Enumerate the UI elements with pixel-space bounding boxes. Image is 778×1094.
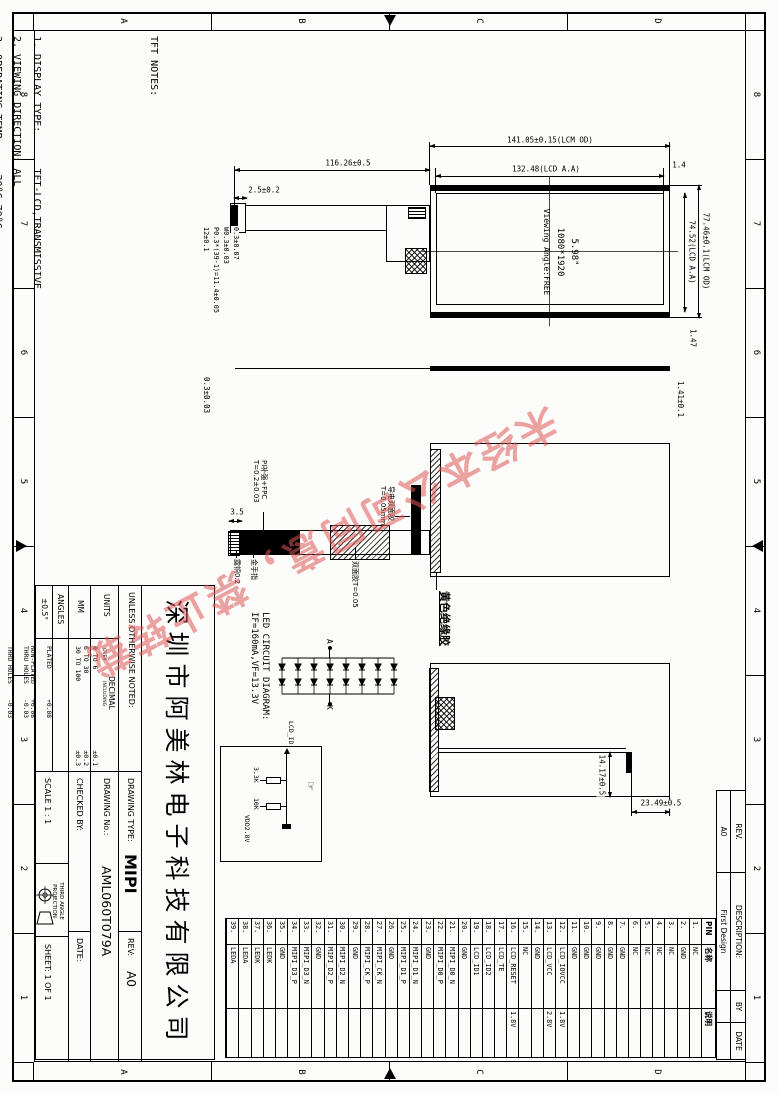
date-label: DATE: [75, 938, 84, 962]
lcm-edge-band [430, 312, 670, 318]
pin-name: MIPI_D3_P [288, 945, 299, 1009]
pin-desc [519, 1009, 530, 1057]
leader-line [263, 512, 264, 531]
dim-gap-right: 1.47 [688, 328, 697, 348]
dim-line [436, 176, 664, 177]
dim-line [229, 521, 242, 522]
dim-line [609, 752, 610, 797]
pin-row: 30. MIPI_D2_N [336, 919, 348, 1057]
pin-row: 13. LCD_VCC 2.8V [543, 919, 555, 1057]
pin-name: GND [568, 945, 579, 1009]
pin-number: 13. [544, 919, 555, 945]
note-line: 1. DISPLAY TYPE: TFT-LCD,TRANSMISSIVE [27, 36, 47, 337]
pin-row: 37. LEDK [251, 919, 263, 1057]
label-text: PI补强+FPC [260, 460, 268, 503]
pin-name: MIPI_D1_N [410, 945, 421, 1009]
pin-row: 15. NC [518, 919, 530, 1057]
rev-header-row: REV. DESCRIPTION: BY DATE [731, 791, 746, 1059]
title-block: 深圳市阿美林电子科技有限公司 UNLESS OTHERWISE NOTED: U… [35, 585, 215, 1060]
label-text: 导电双面胶 [387, 486, 395, 525]
dim-aa-height: 74.52(LCD A.A) [687, 219, 696, 284]
pin-row: 17. LCD_TE [494, 919, 506, 1057]
anode-label: A [325, 638, 334, 645]
lcm-edge-band [430, 185, 670, 191]
pin-desc [532, 1009, 543, 1057]
pin-desc [592, 1009, 603, 1057]
pin-row: 25. MIPI_D1_P [397, 919, 409, 1057]
pin-desc [349, 1009, 360, 1057]
revision-table: REV. DESCRIPTION: BY DATE A0 First Desig… [716, 790, 746, 1060]
pin-number: 22. [434, 919, 445, 945]
label-conductive-tape: 导电双面胶 T=0.05mm [379, 486, 395, 525]
company-name: 深圳市阿美林电子科技有限公司 [142, 586, 214, 1061]
rev-value: A0 [124, 971, 138, 987]
pin-number: 6. [629, 919, 640, 945]
dim-gap-top: 1.4 [671, 162, 687, 171]
pin-row: 3. NC [664, 919, 676, 1057]
cathode-dot [328, 702, 332, 706]
pin-name: GND [422, 945, 433, 1009]
pin-number: 32. [313, 919, 324, 945]
label-gold-finger: 金手指 [250, 558, 258, 581]
label-yellow-insulation: 黄色绝缘胶 [437, 590, 450, 647]
center-mark-icon [384, 15, 396, 26]
resistor-r1 [266, 777, 281, 784]
pin-name: NC [641, 945, 652, 1009]
fpc-component-hatch [405, 248, 427, 274]
fpc-connector-detail [408, 207, 426, 219]
pin-col-header: 说明 [702, 1009, 715, 1057]
zone-letter: C [390, 12, 568, 30]
hand-pointer-icon: ☞ [303, 780, 316, 792]
pin-row: 24. MIPI_D1_N [409, 919, 421, 1057]
rev-value: A0 [717, 791, 731, 873]
pin-number: 5. [641, 919, 652, 945]
pin-name: GND [617, 945, 628, 1009]
pin-number: 33. [300, 919, 311, 945]
pin-desc [690, 1009, 701, 1057]
wire [281, 806, 287, 807]
pin-col-header: 名称 [702, 945, 715, 1009]
insulation-strip [429, 668, 439, 792]
dim-line [684, 193, 685, 312]
dim-line [430, 146, 670, 147]
leader-line [236, 550, 237, 558]
dim-fpc-length: 116.26±0.5 [324, 160, 371, 169]
wire [281, 780, 287, 781]
pin-name: MIPI_CK_P [361, 945, 372, 1009]
decimal-tolerances: 0 TO 6 ±0.1 6 TO 30 ±0.2 30 TO 100 ±0.3 [74, 646, 100, 766]
rev-col-header: DATE [732, 1023, 746, 1059]
pin-row: 9. GND [591, 919, 603, 1057]
pin-row: 35. GND [275, 919, 287, 1057]
pin-row: 16. LCD_RESET 1.8V [506, 919, 518, 1057]
decimal-row: 6 TO 30 ±0.2 [82, 646, 91, 766]
pin-row: 14. GND [531, 919, 543, 1057]
pin-name: GND [276, 945, 287, 1009]
pin-name: GND [592, 945, 603, 1009]
pin-desc [239, 1009, 250, 1057]
pin-name: GND [605, 945, 616, 1009]
pin-desc [264, 1009, 275, 1057]
zone-letter: D [568, 1062, 746, 1082]
pin-number: 11. [568, 919, 579, 945]
pin-name: LCD_ID2 [483, 945, 494, 1009]
label-exposed-copper: 露铜0.2 [233, 558, 241, 585]
zone-letter: A [34, 1062, 212, 1082]
gold-finger-area [228, 531, 240, 556]
pin-number: 16. [507, 919, 518, 945]
dim-pitch: P0.3*(39-1)=11.4±0.05 [211, 226, 219, 314]
zone-number: 5 [12, 417, 34, 546]
pin-desc [398, 1009, 409, 1057]
anode-dot [328, 646, 332, 650]
decimal-range: 30 TO 100 [74, 646, 83, 681]
pin-row: 19. LCD_ID1 [470, 919, 482, 1057]
dim-fold-offset-v: 23.49±0.5 [640, 800, 683, 809]
pin-number: 29. [349, 919, 360, 945]
pin-name: NC [665, 945, 676, 1009]
zone-number: 8 [746, 30, 766, 159]
leader-line [395, 516, 410, 517]
pin-name: MIPI_D3_N [300, 945, 311, 1009]
notes-title: TFT NOTES: [144, 36, 164, 337]
dim-fpc-offset: 2.5±0.2 [247, 187, 281, 196]
pin-number: 31. [325, 919, 336, 945]
pin-desc [665, 1009, 676, 1057]
wire-arrow-icon [284, 748, 290, 754]
zone-letter: B [212, 12, 390, 30]
pin-name: MIPI_CK_N [373, 945, 384, 1009]
pin-number: 30. [337, 919, 348, 945]
pin-name: LEDK [252, 945, 263, 1009]
pin-desc [446, 1009, 457, 1057]
led-circuit-title: LED CIRCUIT DIAGRAM: IF=160mA,VF=13.3V [248, 612, 270, 720]
panel-spec-text: 5.98" 1080*1920 Viewing Angle:FREE [539, 192, 581, 312]
decimal-tol: ±0.1 [91, 750, 100, 766]
resistor-r1-value: 3.3K [252, 766, 259, 784]
zone-number: 7 [746, 159, 766, 288]
zone-number: 6 [746, 288, 766, 417]
pin-number: 10. [580, 919, 591, 945]
pin-col-header: PIN [702, 919, 715, 945]
back-outline [430, 443, 670, 577]
pin-desc [300, 1009, 311, 1057]
decimal-over: OVER [101, 648, 106, 661]
zone-number: 1 [746, 933, 766, 1062]
pin-number: 35. [276, 919, 287, 945]
decimal-tol: ±0.2 [82, 750, 91, 766]
pin-desc: 2.8V [544, 1009, 555, 1057]
dim-connector-width: 12±0.1 [201, 226, 209, 253]
center-mark-icon [384, 1068, 396, 1079]
dim-thickness-top: 1.41±0.1 [675, 380, 684, 418]
dim-line [698, 185, 699, 318]
decimal-range: 0 TO 6 [91, 646, 100, 669]
pin-number: 8. [605, 919, 616, 945]
non-plated-holes: NON-PLATED +0.08 THRU HOLES -0.03 [0, 646, 51, 718]
rev-col-header: REV. [732, 791, 746, 873]
rev-label: REV: [126, 938, 135, 956]
label-text: T=0.05mm [379, 486, 387, 525]
dim-lcm-height: 77.46±0.1(LCM OD) [701, 212, 710, 291]
pin-name: LCD_TE [495, 945, 506, 1009]
decimal-range: 6 TO 30 [82, 646, 91, 673]
pin-desc [641, 1009, 652, 1057]
pin-name: GND [678, 945, 689, 1009]
zone-letter: A [34, 12, 212, 30]
stiffener-block [240, 531, 300, 554]
pin-number: 34. [288, 919, 299, 945]
zone-number: 4 [746, 546, 766, 675]
pin-row: 31. MIPI_D2_P [324, 919, 336, 1057]
pin-row: 7. GND [616, 919, 628, 1057]
leader-line [253, 548, 254, 558]
led-circuit-drawing [276, 646, 402, 710]
drawing-page: 87654321 87654321 DCBA DCBA TFT NOTES: 1… [0, 0, 778, 1094]
pin-desc [495, 1009, 506, 1057]
wire [260, 806, 266, 807]
pin-desc [568, 1009, 579, 1057]
rev-date [717, 1023, 731, 1059]
pin-name: GND [459, 945, 470, 1009]
drawing-sheet: 87654321 87654321 DCBA DCBA TFT NOTES: 1… [0, 0, 778, 1094]
pin-number: 24. [410, 919, 421, 945]
pin-number: 27. [373, 919, 384, 945]
pin-number: 12. [556, 919, 567, 945]
pin-row: 23. GND [421, 919, 433, 1057]
pin-number: 28. [361, 919, 372, 945]
ext-line [663, 168, 664, 193]
pin-number: 26. [386, 919, 397, 945]
dim-gold-finger: 3.5 [229, 509, 245, 518]
ext-line [429, 142, 430, 185]
pin-row: 4. NC [652, 919, 664, 1057]
third-angle-projection-icon [36, 886, 54, 926]
angles-value: ±0.5° [40, 598, 49, 620]
decimal-label: DECIMAL [107, 676, 116, 710]
wire [286, 753, 287, 828]
pin-number: 7. [617, 919, 628, 945]
pin-desc [422, 1009, 433, 1057]
leader-line [436, 572, 437, 590]
dim-aa-width: 132.48(LCD A.A) [511, 166, 581, 175]
pin-row: 18. LCD_ID2 [482, 919, 494, 1057]
drawing-no-label: DRAWING No.: [102, 778, 111, 835]
pin-number: 2. [678, 919, 689, 945]
pin-number: 18. [483, 919, 494, 945]
center-mark-icon [16, 540, 27, 552]
pin-row: 38. LEDA [238, 919, 250, 1057]
rev-by [717, 991, 731, 1023]
tape-block [330, 525, 390, 560]
pin-name: LEDA [227, 945, 238, 1009]
decimal-including: INCLUDING [101, 681, 106, 706]
zone-number: 1 [12, 933, 34, 1062]
checked-by-label: CHECKED BY: [75, 778, 84, 831]
pin-row: 28. MIPI_CK_P [360, 919, 372, 1057]
pin-number: 38. [239, 919, 250, 945]
pin-desc [276, 1009, 287, 1057]
pin-row: 33. MIPI_D3_N [299, 919, 311, 1057]
side-profile-panel [430, 366, 670, 371]
notes-list: 1. DISPLAY TYPE: TFT-LCD,TRANSMISSIVE2. … [0, 36, 105, 337]
pin-number: 37. [252, 919, 263, 945]
pin-number: 36. [264, 919, 275, 945]
pin-table-header: PIN 名称 说明 [701, 919, 715, 1057]
center-mark-icon [752, 540, 763, 552]
net-label: LCD_ID [287, 720, 294, 745]
pin-name: NC [629, 945, 640, 1009]
resistor-r2-value: 10K [252, 797, 259, 811]
pin-name: GND [386, 945, 397, 1009]
pin-number: 1. [690, 919, 701, 945]
pin-number: 14. [532, 919, 543, 945]
drawing-no-value: AML060T079A [99, 866, 114, 956]
pin-number: 25. [398, 919, 409, 945]
pin-name: LCD_ID1 [471, 945, 482, 1009]
pin-table: PIN 名称 说明 1. NC 2. GND 3. NC 4. NC [225, 918, 716, 1058]
pin-desc [313, 1009, 324, 1057]
pin-name: MIPI_D2_N [337, 945, 348, 1009]
yellow-insulation-strip [430, 449, 441, 573]
zone-letter: D [568, 12, 746, 30]
resistor-r2 [266, 803, 281, 810]
label-tape: 双面胶T=0.05 [351, 560, 359, 609]
pin-row: 27. MIPI_CK_N [372, 919, 384, 1057]
folded-connector-bar [626, 752, 632, 773]
decimal-tol: ±0.3 [74, 750, 83, 766]
pin-desc [227, 1009, 238, 1057]
dim-thickness-bottom: 0.3±0.03 [201, 376, 210, 414]
wire [260, 780, 266, 781]
pin-row: 10. GND [579, 919, 591, 1057]
zone-letter: B [212, 1062, 390, 1082]
pin-row: 36. LEDK [263, 919, 275, 1057]
rev-col-header: DESCRIPTION: [732, 873, 746, 991]
pin-row: 26. GND [385, 919, 397, 1057]
led-title-line: LED CIRCUIT DIAGRAM: [259, 612, 270, 720]
zone-number: 2 [746, 804, 766, 933]
rev-description: First Design [717, 873, 731, 991]
pin-name: LCD_RESET [507, 945, 518, 1009]
pin-row: 34. MIPI_D3_P [287, 919, 299, 1057]
drawing-type-value: MIPI [121, 854, 140, 894]
pin-row: 1. NC [689, 919, 701, 1057]
dim-fold-offset-h: 14.17±0.5 [597, 754, 606, 797]
label-stiffener: PI补强+FPC T=0.2±0.03 [252, 460, 268, 503]
note-line: 3. OPERATING TEMP: -20°C~70°C [0, 36, 7, 337]
pin-name: NC [519, 945, 530, 1009]
angles-label: ANGLES [56, 594, 65, 624]
pin-number: 19. [471, 919, 482, 945]
side-profile-fpc [235, 368, 430, 369]
decimal-row: 30 TO 100 ±0.3 [74, 646, 83, 766]
folded-outline [430, 663, 670, 797]
panel-size: 5.98" [567, 192, 581, 312]
panel-resolution: 1080*1920 [553, 192, 567, 312]
pin-name: LEDA [239, 945, 250, 1009]
ext-line [435, 168, 436, 193]
pin-name: MIPI_D1_P [398, 945, 409, 1009]
zone-number: 3 [746, 675, 766, 804]
pin-desc [410, 1009, 421, 1057]
pin-name: LCD_VCC [544, 945, 555, 1009]
pin-name: GND [349, 945, 360, 1009]
pin-number: 9. [592, 919, 603, 945]
dim-line [234, 198, 247, 199]
decimal-row: 0 TO 6 ±0.1 [91, 646, 100, 766]
non-plated-line: THRU HOLES -0.03 [6, 646, 14, 718]
zone-number: 5 [746, 417, 766, 546]
pin-desc [434, 1009, 445, 1057]
pin-desc [373, 1009, 384, 1057]
terminal [282, 824, 291, 829]
pin-number: 15. [519, 919, 530, 945]
pin-desc: 1.8V [507, 1009, 518, 1057]
dim-finger-thickness: 0.3±0.07 [231, 226, 239, 261]
pin-desc [678, 1009, 689, 1057]
pin-desc [288, 1009, 299, 1057]
pin-desc [361, 1009, 372, 1057]
pin-row: 39. LEDA [226, 919, 238, 1057]
pin-row: 8. GND [604, 919, 616, 1057]
pin-desc: 1.8V [556, 1009, 567, 1057]
pin-desc [605, 1009, 616, 1057]
rev-col-header: BY [732, 991, 746, 1023]
pin-name: LEDK [264, 945, 275, 1009]
ext-line [669, 142, 670, 185]
sheet-label: SHEET: 1 OF 1 [43, 944, 52, 1001]
scale-label: SCALE 1 : 1 [43, 778, 52, 824]
pin-desc [325, 1009, 336, 1057]
tft-notes: TFT NOTES: 1. DISPLAY TYPE: TFT-LCD,TRAN… [0, 36, 202, 337]
pin-number: 4. [653, 919, 664, 945]
pin-name: GND [580, 945, 591, 1009]
pin-name: NC [653, 945, 664, 1009]
fpc-band [245, 205, 387, 231]
pin-row: 11. GND [567, 919, 579, 1057]
pin-row: 5. NC [640, 919, 652, 1057]
pin-number: 20. [459, 919, 470, 945]
pin-row: 20. GND [458, 919, 470, 1057]
pin-desc [617, 1009, 628, 1057]
led-title-line: IF=160mA,VF=13.3V [248, 612, 259, 720]
panel-viewing-angle: Viewing Angle:FREE [539, 192, 553, 312]
rev-data-row: A0 First Design [717, 791, 731, 1059]
pin-name: MIPI_D2_P [325, 945, 336, 1009]
pin-number: 3. [665, 919, 676, 945]
pin-name: NC [690, 945, 701, 1009]
zone-number: 2 [12, 804, 34, 933]
leader-line [355, 548, 356, 560]
pin-desc [337, 1009, 348, 1057]
pin-desc [471, 1009, 482, 1057]
pin-desc [483, 1009, 494, 1057]
pin-desc [580, 1009, 591, 1057]
pin-desc [252, 1009, 263, 1057]
pin-row: 12. LCD_IOVCC 1.8V [555, 919, 567, 1057]
pin-number: 17. [495, 919, 506, 945]
vdd-label: VDD2.8V [243, 814, 250, 843]
pin-row: 21. MIPI_D0_N [445, 919, 457, 1057]
pin-desc [629, 1009, 640, 1057]
pin-name: LCD_IOVCC [556, 945, 567, 1009]
pin-number: 21. [446, 919, 457, 945]
pin-name: GND [532, 945, 543, 1009]
dim-line [235, 170, 430, 171]
pin-number: 39. [227, 919, 238, 945]
